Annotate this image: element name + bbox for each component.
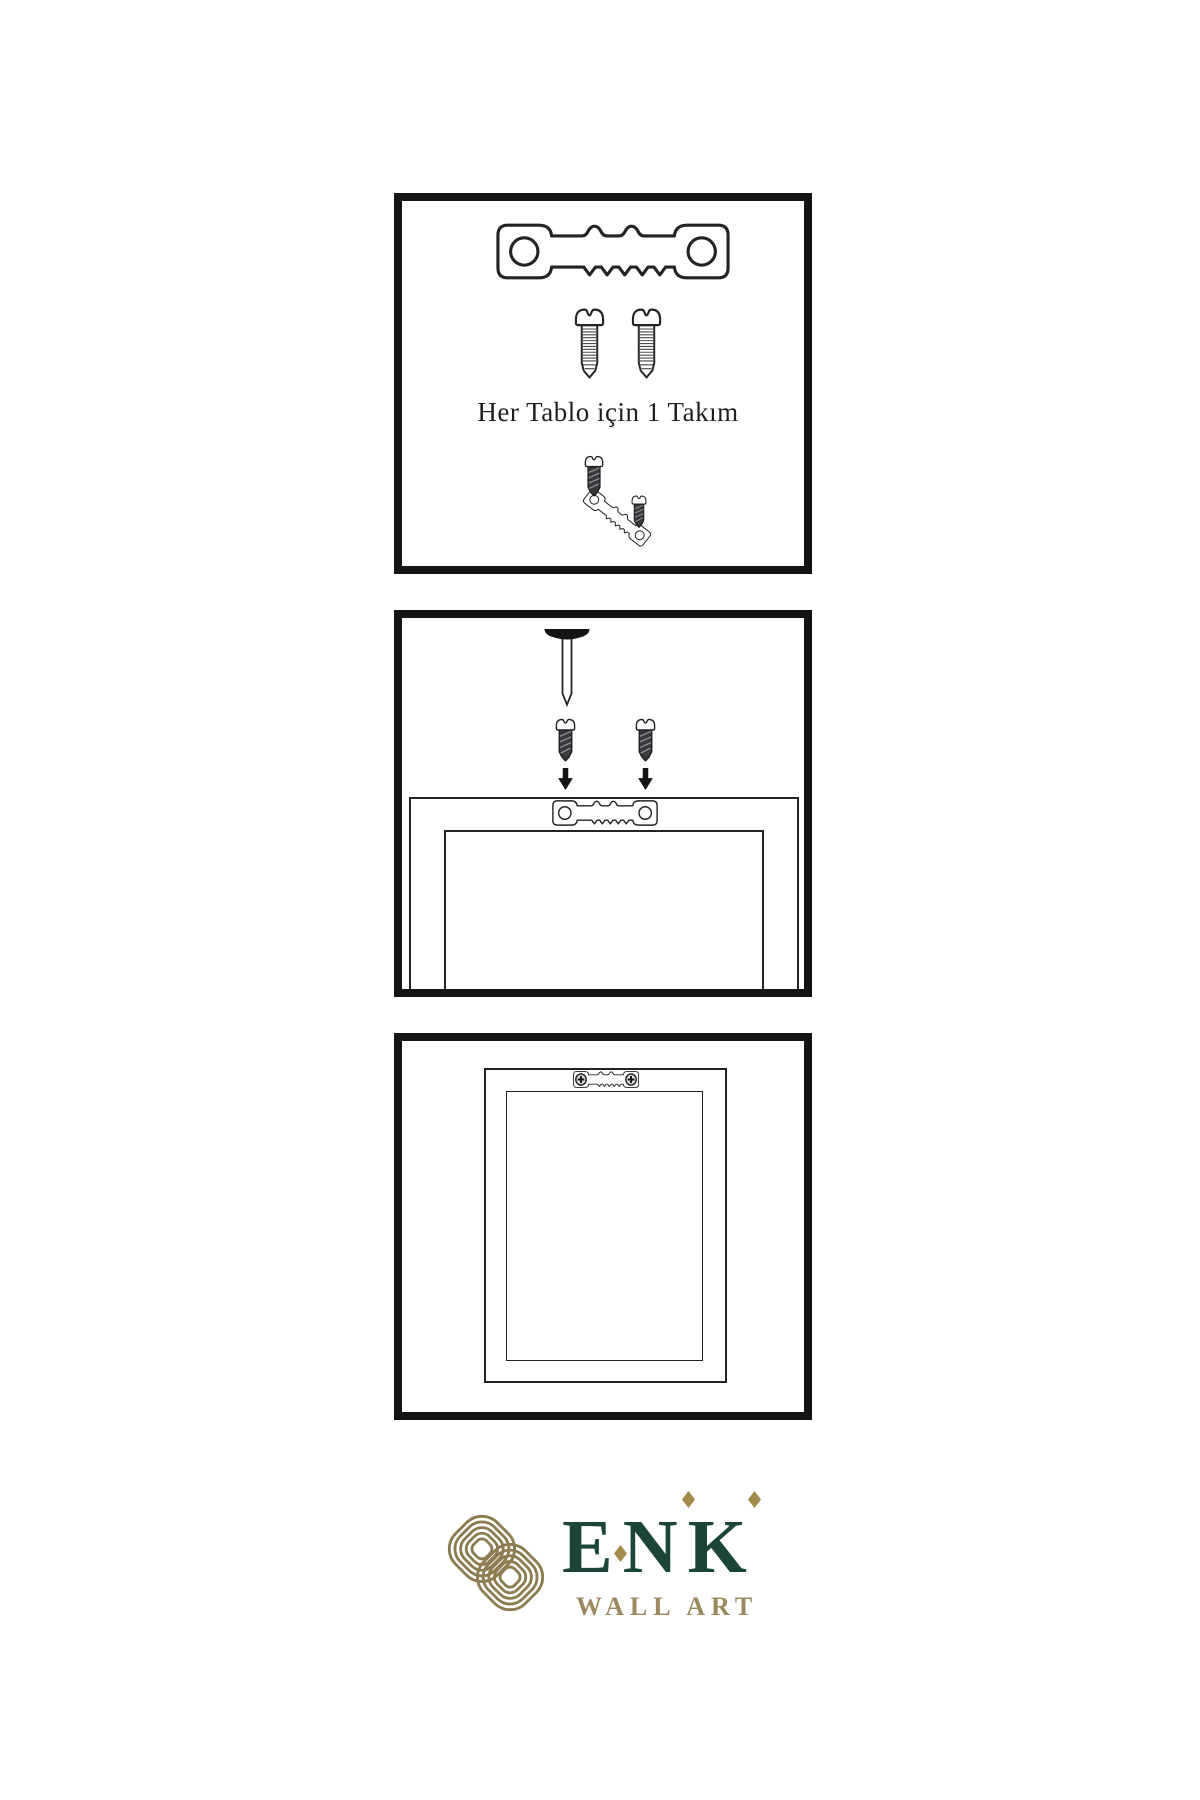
wall-nail-icon bbox=[543, 618, 591, 718]
dark-screw-icon bbox=[555, 718, 576, 763]
panel-mounting-step bbox=[394, 610, 812, 997]
brand-logo: ENK WALL ART bbox=[430, 1493, 790, 1638]
brand-name: ENK bbox=[562, 1509, 757, 1585]
sawtooth-hanger-icon bbox=[496, 223, 730, 280]
dark-screw-icon bbox=[635, 718, 656, 763]
kit-caption: Her Tablo için 1 Takım bbox=[402, 397, 804, 428]
screw-icon bbox=[574, 306, 605, 383]
phillips-screw-icon bbox=[576, 1074, 586, 1085]
screw-icon bbox=[631, 306, 662, 383]
installed-sawtooth-hanger-icon bbox=[573, 1071, 639, 1088]
dark-screw-icon bbox=[631, 495, 647, 529]
down-arrow-icon bbox=[638, 768, 653, 790]
knot-logo-icon bbox=[432, 1497, 560, 1629]
dark-screw-icon bbox=[584, 455, 604, 498]
instruction-sheet: Her Tablo için 1 Takım bbox=[0, 0, 1200, 1800]
brand-subtitle: WALL ART bbox=[576, 1592, 758, 1622]
phillips-screw-icon bbox=[626, 1074, 636, 1085]
down-arrow-icon bbox=[558, 768, 573, 790]
frame-back-inner-edge bbox=[506, 1091, 703, 1361]
panel-hardware-kit: Her Tablo için 1 Takım bbox=[394, 193, 812, 574]
sawtooth-hanger-icon bbox=[552, 800, 658, 826]
panel-hanging-step bbox=[394, 1033, 812, 1420]
frame-back-inner-edge bbox=[444, 830, 764, 989]
